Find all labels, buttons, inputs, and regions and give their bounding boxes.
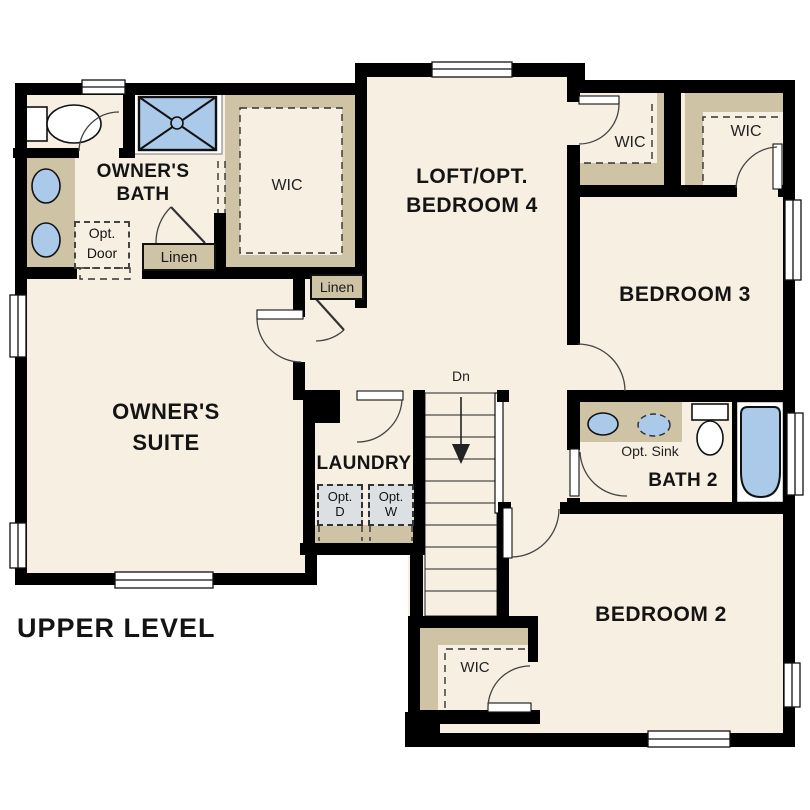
shower-fixture [133,92,222,154]
room-label-loft: LOFT/OPT. BEDROOM 4 [372,162,572,220]
opt-dryer-line1: Opt. [319,489,361,504]
room-label-laundry: LAUNDRY [307,452,421,475]
wall-segment [408,733,795,747]
wall-segment [497,390,509,402]
opt-dryer-line2: D [319,504,361,519]
wall-segment [408,616,538,628]
closet-label-loft-wic: WIC [600,133,660,152]
wall-segment [119,148,135,158]
room-label-owners-bath: OWNER'S BATH [83,160,203,206]
annotation-opt-dryer: Opt. D [317,484,363,526]
optional-sink-fixture [638,414,670,436]
closet-label-bedroom2-wic: WIC [445,659,505,677]
sink-fixture [32,169,60,203]
owners-suite-line2: SUITE [66,427,266,458]
wall-segment [13,148,79,158]
opt-washer-line1: Opt. [370,489,412,504]
wall-segment [560,502,795,514]
floor-plan: OWNER'S BATH WIC LOFT/OPT. BEDROOM 4 WIC… [0,0,810,810]
laundry-counter [312,525,415,543]
sink-fixture [588,413,618,435]
owners-bath-line2: BATH [83,183,203,206]
room-label-bedroom3: BEDROOM 3 [585,280,785,309]
wall-segment [567,185,737,197]
bathtub-fixture [737,402,783,502]
door-leaf [503,508,512,558]
page-title: UPPER LEVEL [17,613,216,644]
wall-segment [528,628,538,662]
room-label-owners-suite: OWNER'S SUITE [66,396,266,458]
wall-segment [15,267,77,279]
door-leaf [579,96,619,104]
wall-segment [567,93,580,102]
loft-line1: LOFT/OPT. [372,162,572,191]
closet-label-bedroom3-wic: WIC [716,122,776,141]
annotation-opt-sink: Opt. Sink [600,443,700,460]
annotation-opt-washer: Opt. W [368,484,414,526]
loft-line2: BEDROOM 4 [372,191,572,220]
wall-segment [300,543,418,555]
closet-label-linen-bath: Linen [142,243,216,271]
wall-segment [664,93,681,187]
door-leaf [488,703,531,712]
opt-door-line1: Opt. [76,223,128,243]
annotation-opt-door: Opt. Door [74,221,130,269]
opt-washer-line2: W [370,504,412,519]
wall-segment [15,83,365,95]
annotation-stairs-down: Dn [446,368,476,385]
door-leaf [773,144,782,189]
sink-fixture [32,223,60,257]
owners-bath-line1: OWNER'S [83,160,203,183]
door-leaf [357,391,403,400]
stair-railing [495,393,503,513]
bedroom2-wic-floor [438,645,528,712]
door-leaf [570,449,579,496]
wall-segment [408,628,420,715]
wall-segment [567,390,795,402]
room-label-bedroom2: BEDROOM 2 [561,600,761,629]
closet-label-linen-hall: Linen [310,274,364,300]
opt-door-line2: Door [76,243,128,263]
wall-segment [578,80,795,93]
closet-label-owners-wic: WIC [257,176,317,195]
room-label-bath2: BATH 2 [633,469,733,492]
owners-suite-line1: OWNER'S [66,396,266,427]
door-leaf [257,310,303,319]
stairs [425,393,503,616]
